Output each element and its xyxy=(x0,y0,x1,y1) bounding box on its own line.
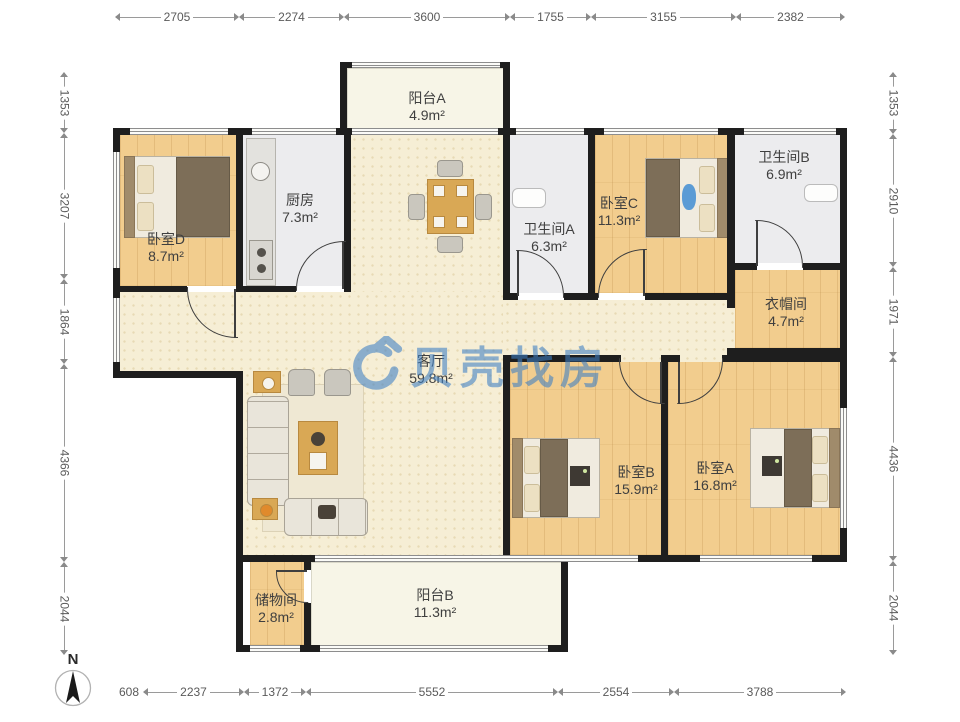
dimension-segment: 4436 xyxy=(884,357,902,561)
kitchen-sink xyxy=(251,162,270,181)
floor-hallway xyxy=(503,300,735,362)
window xyxy=(544,555,638,562)
wall xyxy=(588,135,595,300)
washbasin-bathroom-b xyxy=(804,184,838,202)
dimension-segment: 1971 xyxy=(884,267,902,357)
north-label: N xyxy=(52,652,94,668)
armchair xyxy=(324,369,351,396)
door-leaf xyxy=(234,289,236,338)
room-label-kitchen: 厨房7.3m² xyxy=(282,192,318,226)
room-label-bedroom-b: 卧室B15.9m² xyxy=(614,464,658,498)
wall xyxy=(236,286,296,292)
dimension-segment: 5552 xyxy=(306,683,558,701)
bed-bedroom-d xyxy=(124,156,230,238)
wall xyxy=(503,355,621,362)
sofa-loveseat xyxy=(284,498,368,536)
dimension-segment: 1353 xyxy=(884,72,902,134)
dimension-segment: 2044 xyxy=(884,561,902,655)
window xyxy=(744,128,836,135)
door-leaf xyxy=(678,362,680,404)
room-label-storage: 储物间2.8m² xyxy=(255,592,297,626)
dimension-segment: 2910 xyxy=(884,134,902,267)
door-leaf xyxy=(517,250,519,296)
window xyxy=(604,128,718,135)
wall xyxy=(304,562,311,570)
door-leaf xyxy=(660,362,662,404)
wall xyxy=(113,286,187,292)
north-compass: N xyxy=(52,652,94,713)
window xyxy=(840,408,847,528)
room-label-bedroom-d: 卧室D8.7m² xyxy=(147,231,185,265)
wall xyxy=(113,371,243,378)
wall xyxy=(340,62,347,135)
dining-chair xyxy=(408,194,425,220)
wall xyxy=(722,355,847,362)
room-label-bathroom-a: 卫生间A6.3m² xyxy=(523,221,574,255)
window xyxy=(252,128,336,135)
wall xyxy=(236,128,243,292)
wall xyxy=(503,62,510,135)
dimension-segment: 4366 xyxy=(55,364,73,562)
window xyxy=(113,152,120,268)
dimension-segment: 2554 xyxy=(558,683,674,701)
wall xyxy=(645,293,735,300)
dimension-segment: 1864 xyxy=(55,279,73,364)
wall xyxy=(561,555,568,652)
wall xyxy=(236,371,243,652)
window xyxy=(250,645,300,652)
dimension-segment: 2705 xyxy=(115,8,239,26)
bed-bedroom-b xyxy=(512,438,600,518)
side-table xyxy=(253,371,281,393)
wall xyxy=(503,293,518,300)
room-label-living-room: 客厅59.8m² xyxy=(409,353,453,387)
dining-chair xyxy=(475,194,492,220)
window xyxy=(700,555,812,562)
side-table xyxy=(252,498,278,520)
room-label-bedroom-a: 卧室A16.8m² xyxy=(693,460,737,494)
wall xyxy=(564,293,598,300)
floorplan-page: 阳台A4.9m² 厨房7.3m² 卧室D8.7m² 卫生间A6.3m² 卧室C1… xyxy=(0,0,960,722)
armchair xyxy=(288,369,315,396)
window-slider xyxy=(352,128,498,135)
bed-bedroom-c xyxy=(645,158,727,238)
wall xyxy=(727,135,735,308)
wall xyxy=(503,355,510,562)
room-label-balcony-b: 阳台B11.3m² xyxy=(414,587,457,621)
dimension-segment: 2044 xyxy=(55,562,73,655)
room-label-balcony-a: 阳台A4.9m² xyxy=(408,90,445,124)
dining-chair xyxy=(437,236,463,253)
dimension-segment: 1755 xyxy=(510,8,591,26)
door-leaf xyxy=(756,220,758,266)
window xyxy=(113,298,120,362)
dining-chair xyxy=(437,160,463,177)
washbasin-bathroom-a xyxy=(512,188,546,208)
dimension-segment: 1353 xyxy=(55,72,73,133)
dimension-segment: 2237 xyxy=(143,683,244,701)
window xyxy=(130,128,228,135)
window xyxy=(516,128,584,135)
dimension-segment: 3600 xyxy=(344,8,510,26)
room-label-bathroom-b: 卫生间B6.9m² xyxy=(758,149,809,183)
window xyxy=(352,62,500,68)
dimension-segment: 3788 xyxy=(674,683,846,701)
dimension-segment: 2382 xyxy=(736,8,845,26)
kitchen-stove xyxy=(249,240,273,280)
dimension-segment: 3155 xyxy=(591,8,736,26)
room-label-cloakroom: 衣帽间4.7m² xyxy=(765,296,807,330)
bed-bedroom-a xyxy=(750,428,838,508)
room-label-bedroom-c: 卧室C11.3m² xyxy=(598,195,641,229)
dimension-segment: 608 xyxy=(115,683,143,701)
sofa-long xyxy=(247,396,289,506)
dining-table xyxy=(427,179,474,234)
window-slider xyxy=(315,555,555,562)
window xyxy=(320,645,548,652)
dimension-segment: 2274 xyxy=(239,8,344,26)
dimension-segment: 3207 xyxy=(55,133,73,279)
compass-needle-icon xyxy=(53,668,93,708)
wall xyxy=(727,263,757,270)
wall xyxy=(503,135,510,300)
door-leaf xyxy=(276,570,307,572)
wall xyxy=(727,348,847,355)
door-leaf xyxy=(342,241,344,289)
door-leaf xyxy=(643,249,645,296)
dimension-segment: 1372 xyxy=(244,683,306,701)
coffee-table xyxy=(298,421,338,475)
